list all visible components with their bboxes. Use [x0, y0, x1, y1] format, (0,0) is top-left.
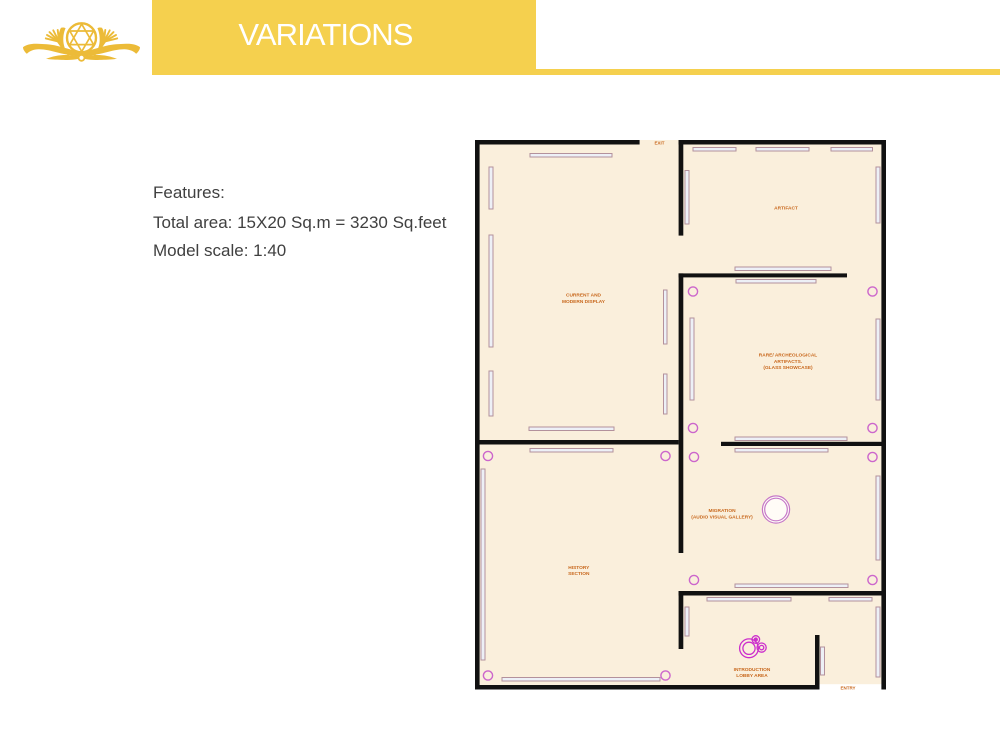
svg-text:(GLASS SHOWCASE): (GLASS SHOWCASE): [763, 365, 813, 371]
svg-text:RARE/ ARCHEOLOGICAL: RARE/ ARCHEOLOGICAL: [759, 353, 818, 359]
svg-text:MODERN DISPLAY: MODERN DISPLAY: [562, 299, 606, 305]
svg-text:INTRODUCTION: INTRODUCTION: [734, 667, 771, 673]
svg-text:ENTRY: ENTRY: [840, 685, 855, 690]
svg-text:ARTIFACTS.: ARTIFACTS.: [774, 359, 802, 365]
svg-text:ARTIFACT: ARTIFACT: [774, 206, 798, 212]
svg-text:CURRENT AND: CURRENT AND: [566, 293, 602, 299]
svg-text:LOBBY AREA: LOBBY AREA: [736, 673, 768, 679]
svg-text:HISTORY: HISTORY: [568, 565, 590, 571]
svg-text:SECTION: SECTION: [568, 571, 590, 577]
svg-text:MIGRATION: MIGRATION: [708, 508, 736, 514]
svg-text:(AUDIO VISUAL GALLERY): (AUDIO VISUAL GALLERY): [691, 514, 753, 520]
svg-text:EXIT: EXIT: [654, 140, 664, 145]
